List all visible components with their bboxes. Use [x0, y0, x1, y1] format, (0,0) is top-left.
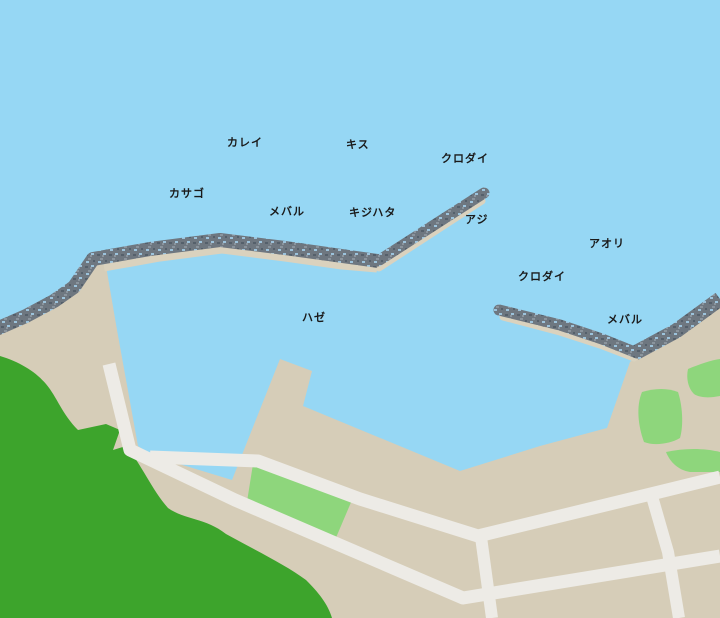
fish-spot-label-kijihata: キジハタ — [349, 208, 396, 219]
fish-spot-label-aji: アジ — [465, 215, 489, 226]
fish-spot-label-kasago: カサゴ — [169, 189, 205, 200]
fishing-point-map: カレイ キス クロダイ カサゴ メバル キジハタ アジ アオリ クロダイ メバル… — [0, 0, 720, 618]
fish-spot-label-kisu: キス — [346, 140, 370, 151]
fish-spot-label-karei: カレイ — [227, 138, 263, 149]
harbor-map-graphic — [0, 0, 720, 618]
fish-spot-label-mebaru-1: メバル — [269, 207, 305, 218]
fish-spot-label-aori: アオリ — [589, 239, 625, 250]
fish-spot-label-mebaru-2: メバル — [607, 315, 643, 326]
fish-spot-label-kurodai-1: クロダイ — [441, 154, 489, 165]
fish-spot-label-haze: ハゼ — [302, 313, 326, 324]
green-patch-middle — [638, 389, 682, 444]
fish-spot-label-kurodai-2: クロダイ — [518, 272, 566, 283]
